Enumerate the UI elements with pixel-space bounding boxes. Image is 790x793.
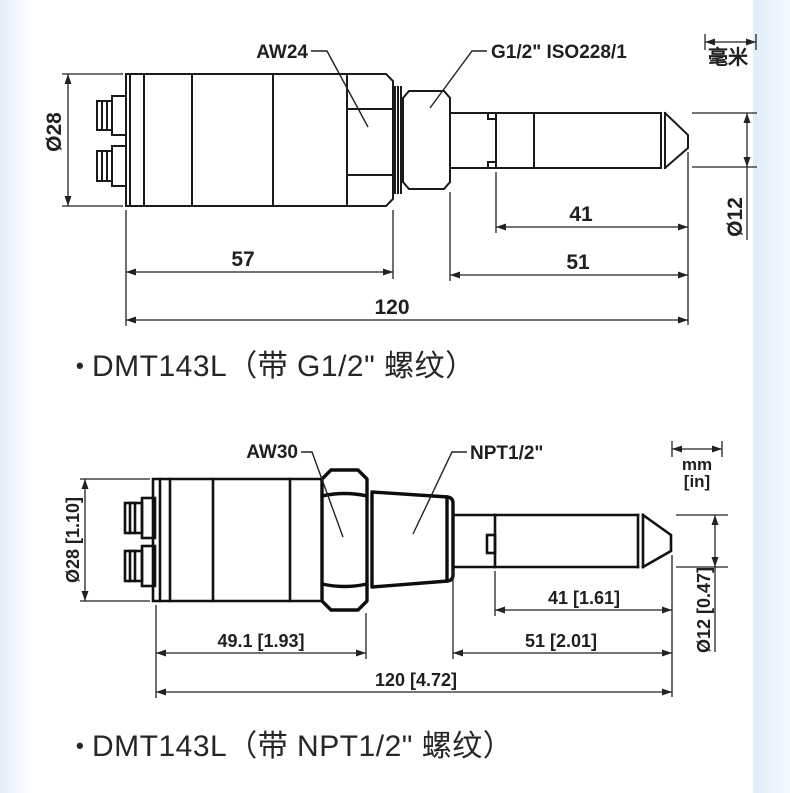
g12-caption-bullet: • (76, 353, 84, 378)
g12-thread-block (403, 91, 450, 189)
npt-dim-probe-length-text: 41 [1.61] (548, 588, 620, 608)
npt-dim-body-length-text: 49.1 [1.93] (217, 631, 304, 651)
npt-dim-body-diameter: Ø28 [1.10] (63, 479, 150, 601)
g12-unit-note: 毫米 (705, 34, 756, 69)
g12-probe (450, 113, 688, 168)
g12-wrench-label: AW24 (256, 42, 308, 63)
g12-dim-probe-length-text: 41 (569, 203, 593, 226)
npt-dim-probe-diameter-text: Ø12 [0.47] (694, 567, 714, 653)
g12-body-outline (126, 74, 393, 206)
npt-dim-body-diameter-text: Ø28 [1.10] (63, 497, 83, 583)
npt-thread-label: NPT1/2" (470, 443, 543, 464)
npt-dim-probe-diameter: Ø12 [0.47] (676, 515, 728, 653)
npt-probe (453, 515, 671, 567)
npt-dim-shaft-length: 51 [2.01] (453, 571, 672, 659)
npt-dim-shaft-length-text: 51 [2.01] (525, 631, 597, 651)
g12-dim-body-length: 57 (126, 210, 393, 326)
npt-drawing: AW30 NPT1/2" mm [in] Ø28 [1.10] (63, 441, 728, 763)
dimension-drawings-svg: AW24 G1/2" ISO228/1 毫米 Ø28 (0, 0, 790, 793)
npt-thread-cone (372, 492, 453, 587)
npt-hex-nut (322, 470, 367, 610)
g12-thread-leader (430, 51, 487, 108)
technical-drawing-page: AW24 G1/2" ISO228/1 毫米 Ø28 (0, 0, 790, 793)
g12-dim-probe-diameter: Ø12 (692, 113, 757, 240)
npt-connectors (125, 498, 155, 586)
g12-drawing: AW24 G1/2" ISO228/1 毫米 Ø28 (43, 34, 757, 383)
g12-dim-shaft-length-text: 51 (566, 251, 590, 274)
g12-connectors (97, 96, 126, 186)
npt-caption-bullet: • (76, 733, 84, 758)
npt-unit-note: mm [in] (672, 441, 722, 491)
g12-unit-label: 毫米 (708, 45, 749, 69)
npt-dim-probe-length: 41 [1.61] (495, 555, 672, 697)
g12-dim-total-length: 120 (126, 296, 688, 320)
g12-washer (395, 87, 401, 193)
npt-wrench-label: AW30 (246, 442, 298, 463)
g12-dim-body-length-text: 57 (231, 248, 254, 271)
g12-thread-label: G1/2" ISO228/1 (491, 42, 627, 63)
g12-dim-probe-length: 41 (496, 152, 688, 325)
npt-dim-total-length: 120 [4.72] (156, 670, 672, 692)
npt-caption: DMT143L（带 NPT1/2" 螺纹） (92, 730, 513, 763)
npt-unit-in: [in] (684, 472, 710, 491)
g12-wrench-leader (311, 51, 368, 127)
npt-body-outline (153, 479, 322, 601)
npt-dim-total-length-text: 120 [4.72] (375, 670, 457, 690)
npt-dim-body-length: 49.1 [1.93] (156, 605, 366, 698)
g12-dim-body-diameter-text: Ø28 (43, 112, 66, 152)
npt-thread-leader (413, 452, 467, 534)
g12-caption: DMT143L（带 G1/2" 螺纹） (92, 350, 476, 383)
g12-dim-probe-diameter-text: Ø12 (724, 197, 747, 237)
g12-dim-total-length-text: 120 (374, 296, 409, 319)
